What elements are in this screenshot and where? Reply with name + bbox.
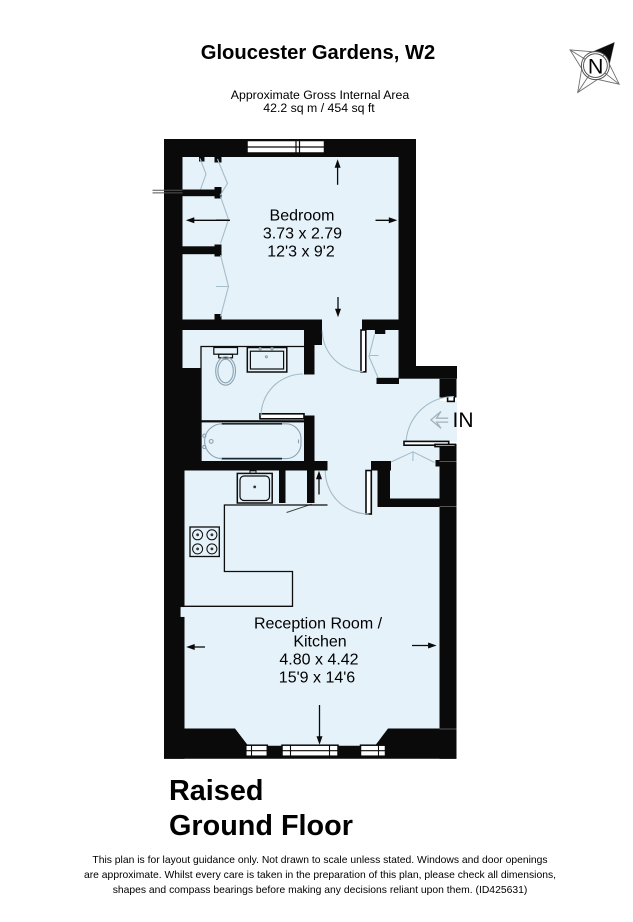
svg-text:Raised: Raised (169, 775, 263, 807)
svg-text:Ground Floor: Ground Floor (169, 810, 353, 842)
svg-text:42.2 sq m / 454 sq ft: 42.2 sq m / 454 sq ft (263, 101, 375, 115)
svg-text:Kitchen: Kitchen (293, 634, 346, 651)
svg-text:Gloucester Gardens, W2: Gloucester Gardens, W2 (201, 42, 435, 64)
svg-text:12'3 x 9'2: 12'3 x 9'2 (267, 243, 335, 260)
svg-text:IN: IN (453, 409, 474, 432)
svg-text:3.73 x 2.79: 3.73 x 2.79 (263, 225, 342, 242)
svg-text:15'9 x 14'6: 15'9 x 14'6 (279, 669, 355, 686)
svg-text:4.80 x 4.42: 4.80 x 4.42 (279, 652, 358, 669)
svg-text:Approximate Gross Internal Are: Approximate Gross Internal Area (231, 88, 410, 102)
svg-text:shapes and compass bearings be: shapes and compass bearings before makin… (113, 885, 528, 896)
svg-text:are approximate. Whilst every: are approximate. Whilst every care is ta… (84, 870, 556, 881)
svg-text:Reception Room /: Reception Room / (254, 616, 383, 633)
svg-text:This plan is for layout guidan: This plan is for layout guidance only. N… (92, 855, 547, 866)
svg-text:N: N (588, 54, 604, 78)
svg-text:Bedroom: Bedroom (270, 208, 335, 225)
